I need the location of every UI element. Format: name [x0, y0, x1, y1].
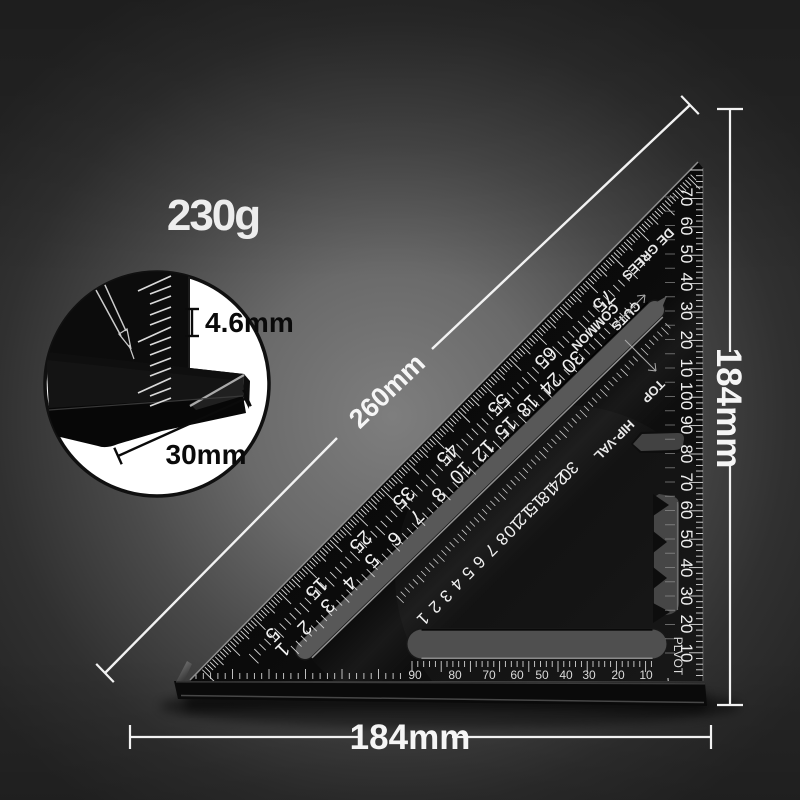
svg-text:70: 70: [677, 473, 696, 492]
svg-text:30mm: 30mm: [166, 439, 247, 470]
svg-text:20: 20: [677, 615, 696, 634]
svg-text:100: 100: [677, 382, 696, 410]
svg-text:10: 10: [677, 359, 696, 378]
svg-text:70: 70: [482, 668, 496, 682]
svg-text:50: 50: [535, 668, 549, 682]
svg-text:50: 50: [677, 530, 696, 549]
svg-text:20: 20: [677, 331, 696, 350]
svg-text:70: 70: [677, 188, 696, 207]
svg-text:30: 30: [582, 668, 596, 682]
svg-text:90: 90: [677, 416, 696, 435]
svg-text:30: 30: [677, 587, 696, 606]
svg-text:10: 10: [639, 668, 653, 682]
svg-text:40: 40: [559, 668, 573, 682]
svg-text:50: 50: [677, 245, 696, 264]
svg-text:20: 20: [611, 668, 625, 682]
svg-text:PLVOT: PLVOT: [671, 637, 685, 676]
svg-text:230g: 230g: [167, 191, 259, 240]
svg-text:40: 40: [677, 559, 696, 578]
svg-text:80: 80: [677, 445, 696, 464]
svg-text:30: 30: [677, 302, 696, 321]
svg-text:184mm: 184mm: [709, 348, 748, 469]
svg-text:184mm: 184mm: [350, 718, 471, 757]
svg-text:60: 60: [677, 501, 696, 520]
svg-text:40: 40: [677, 273, 696, 292]
svg-text:60: 60: [510, 668, 524, 682]
svg-text:80: 80: [448, 668, 462, 682]
svg-text:4.6mm: 4.6mm: [205, 307, 294, 338]
svg-text:60: 60: [677, 217, 696, 236]
svg-text:90: 90: [408, 668, 422, 682]
